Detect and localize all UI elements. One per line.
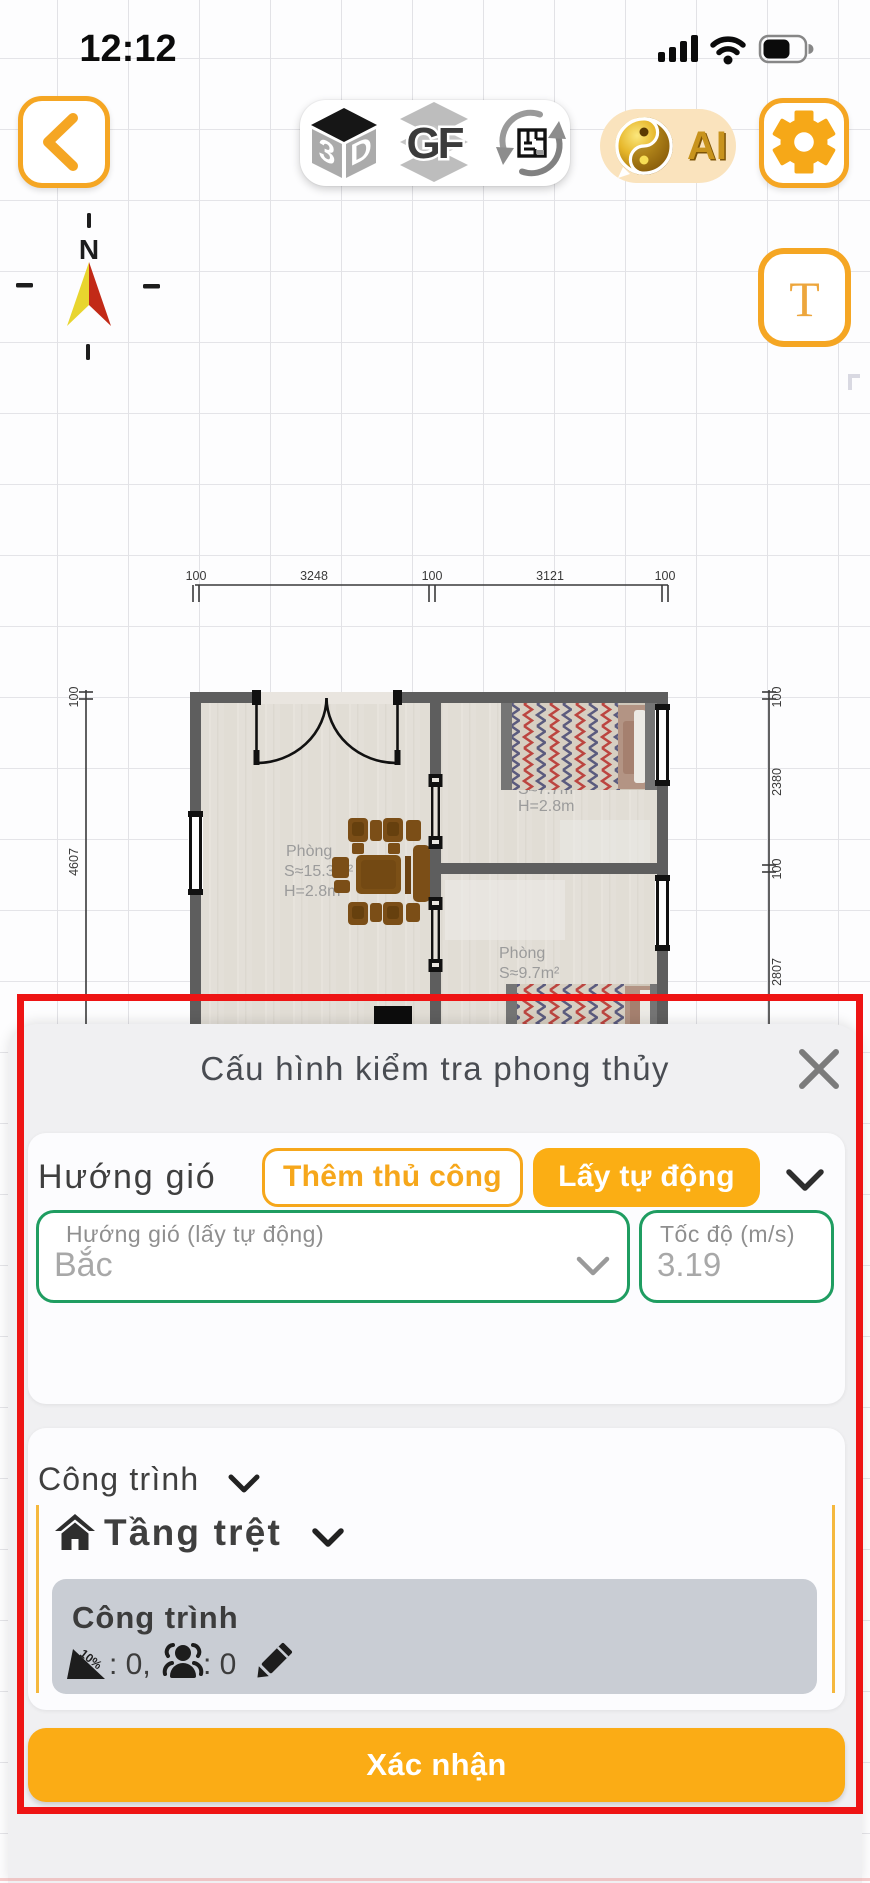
svg-text:2380: 2380 (770, 768, 784, 796)
svg-text:N: N (79, 234, 99, 265)
svg-text:H=2.8m: H=2.8m (284, 883, 340, 900)
svg-text:Phòng: Phòng (499, 945, 545, 962)
svg-text:Phòng: Phòng (286, 843, 332, 860)
svg-text:3121: 3121 (536, 569, 564, 583)
svg-text:100: 100 (186, 569, 207, 583)
svg-text:100: 100 (67, 687, 81, 708)
svg-text:4607: 4607 (67, 848, 81, 876)
svg-text:GF: GF (406, 119, 463, 168)
svg-text:2807: 2807 (770, 958, 784, 986)
svg-text:3248: 3248 (300, 569, 328, 583)
svg-text:100: 100 (422, 569, 443, 583)
svg-text:100: 100 (770, 859, 784, 880)
svg-text:100: 100 (770, 687, 784, 708)
svg-text:H=2.8m: H=2.8m (518, 798, 574, 815)
svg-text:100: 100 (655, 569, 676, 583)
svg-text:S≈9.7m²: S≈9.7m² (499, 965, 560, 982)
